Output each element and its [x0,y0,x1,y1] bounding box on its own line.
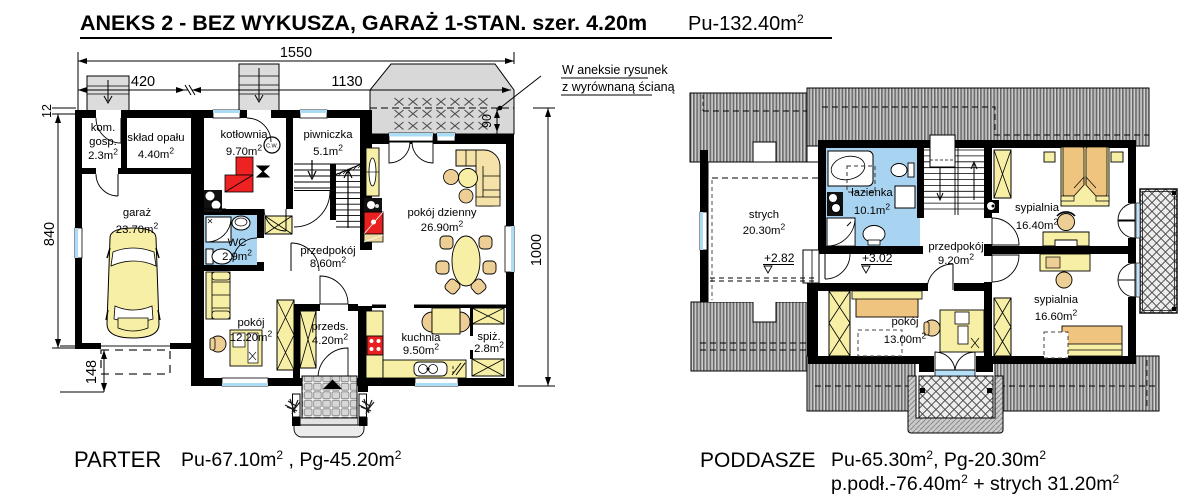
svg-text:sypialnia: sypialnia [1015,202,1060,214]
svg-text:PARTER: PARTER [74,447,161,472]
svg-text:kom.: kom. [91,122,115,134]
svg-text:z wyrównaną ścianą: z wyrównaną ścianą [562,80,675,94]
svg-text:Pu-65.30m2, Pg-20.30m2: Pu-65.30m2, Pg-20.30m2 [831,448,1046,471]
svg-text:ANEKS 2 - BEZ WYKUSZA, GARAŻ 1: ANEKS 2 - BEZ WYKUSZA, GARAŻ 1-STAN. sze… [80,11,647,35]
svg-text:garaż: garaż [123,207,152,219]
svg-text:pokój dzienny: pokój dzienny [407,207,476,219]
svg-text:przedpokój: przedpokój [300,245,355,257]
svg-text:420: 420 [131,74,155,90]
svg-text:skład opału: skład opału [127,132,184,144]
svg-text:przedpokój: przedpokój [928,241,983,253]
svg-text:1130: 1130 [331,74,362,90]
svg-text:pokój: pokój [237,317,264,329]
svg-text:WC: WC [228,237,247,249]
svg-text:90: 90 [480,114,494,128]
svg-text:148: 148 [84,360,100,384]
svg-text:pokój: pokój [891,316,918,328]
svg-text:spiż.: spiż. [477,331,500,343]
svg-text:Pu-132.40m2: Pu-132.40m2 [688,12,804,35]
svg-text:W aneksie rysunek: W aneksie rysunek [562,63,668,77]
svg-text:Pu-67.10m2 , Pg-45.20m2: Pu-67.10m2 , Pg-45.20m2 [181,448,402,471]
svg-text:łazienka: łazienka [851,187,893,199]
svg-text:sypialnia: sypialnia [1034,294,1079,306]
svg-text:+3.02: +3.02 [862,251,893,265]
svg-text:piwniczka: piwniczka [304,129,354,141]
svg-text:12: 12 [40,104,54,118]
svg-text:+2.82: +2.82 [764,251,795,265]
svg-text:1550: 1550 [280,45,312,61]
svg-text:p.podł.-76.40m2 + strych 31.2: p.podł.-76.40m2 + strych 31.20m2 [831,472,1119,495]
svg-text:1000: 1000 [529,234,545,266]
svg-text:kotłownia: kotłownia [220,129,268,141]
svg-text:strych: strych [749,209,779,221]
svg-text:C.W.: C.W. [266,144,278,150]
svg-text:840: 840 [42,222,58,246]
svg-text:PODDASZE: PODDASZE [700,449,816,472]
